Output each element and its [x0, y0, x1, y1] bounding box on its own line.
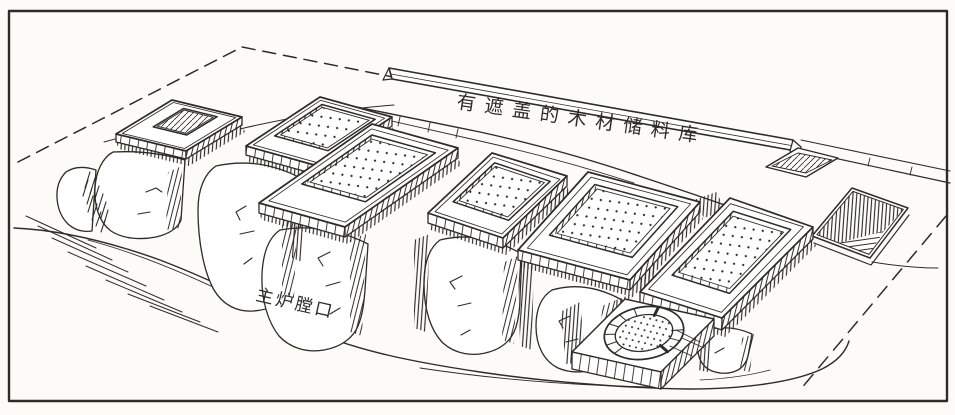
crevice-hatch — [518, 258, 534, 350]
illustration-canvas: 有遮盖的木材储料库 主炉膛口 — [0, 0, 955, 415]
figure-stage: 有遮盖的木材储料库 主炉膛口 — [0, 0, 955, 415]
mound-shadow-hatch — [166, 166, 182, 230]
